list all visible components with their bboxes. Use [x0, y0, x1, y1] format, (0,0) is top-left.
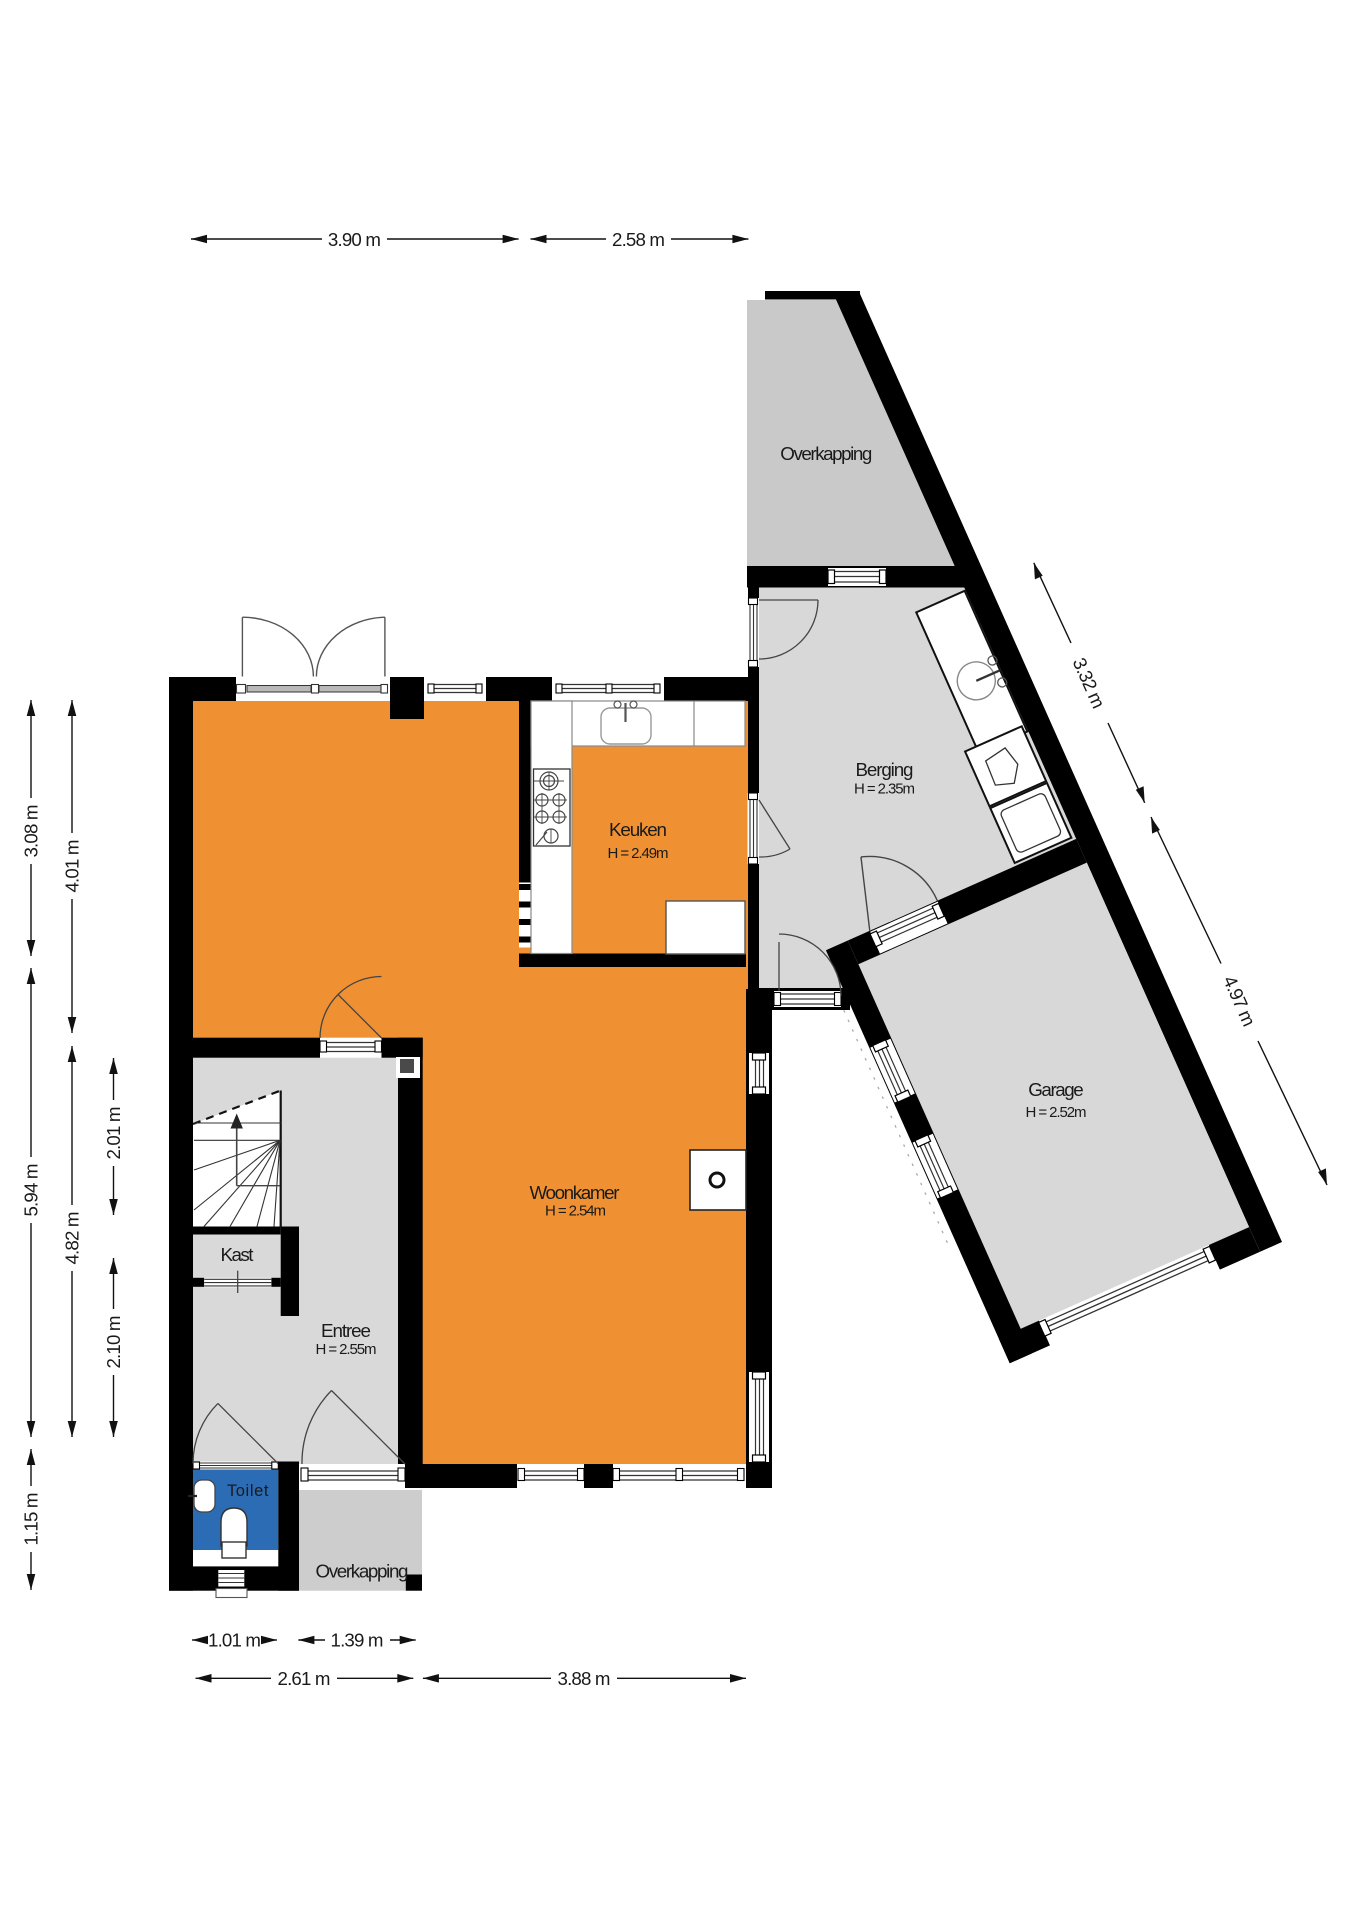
- svg-text:3.90 m: 3.90 m: [328, 229, 381, 250]
- svg-text:Kast: Kast: [221, 1244, 255, 1265]
- svg-text:Overkapping: Overkapping: [316, 1561, 409, 1582]
- svg-text:Berging: Berging: [856, 759, 914, 780]
- svg-text:Toilet: Toilet: [227, 1482, 269, 1500]
- svg-text:5.94 m: 5.94 m: [21, 1164, 42, 1217]
- svg-text:Keuken: Keuken: [609, 819, 667, 840]
- svg-text:4.01 m: 4.01 m: [62, 840, 83, 893]
- svg-text:Entree: Entree: [321, 1320, 371, 1341]
- svg-text:H = 2.35m: H = 2.35m: [854, 781, 915, 798]
- svg-text:H = 2.54m: H = 2.54m: [545, 1203, 606, 1220]
- svg-text:2.01 m: 2.01 m: [103, 1107, 124, 1160]
- svg-text:H = 2.49m: H = 2.49m: [608, 845, 669, 862]
- svg-text:3.08 m: 3.08 m: [21, 805, 42, 858]
- svg-text:Woonkamer: Woonkamer: [530, 1182, 620, 1203]
- svg-text:4.82 m: 4.82 m: [62, 1212, 83, 1265]
- svg-text:2.10 m: 2.10 m: [103, 1316, 124, 1369]
- svg-text:1.39 m: 1.39 m: [331, 1630, 384, 1651]
- svg-text:Garage: Garage: [1028, 1079, 1084, 1100]
- svg-text:H = 2.52m: H = 2.52m: [1026, 1104, 1087, 1121]
- svg-text:1.15 m: 1.15 m: [21, 1493, 42, 1546]
- svg-text:2.58 m: 2.58 m: [612, 229, 665, 250]
- svg-text:2.61 m: 2.61 m: [278, 1668, 331, 1689]
- svg-text:1.01 m: 1.01 m: [208, 1630, 261, 1651]
- svg-text:3.88 m: 3.88 m: [558, 1668, 611, 1689]
- svg-text:Overkapping: Overkapping: [780, 443, 872, 464]
- svg-text:H = 2.55m: H = 2.55m: [316, 1341, 377, 1358]
